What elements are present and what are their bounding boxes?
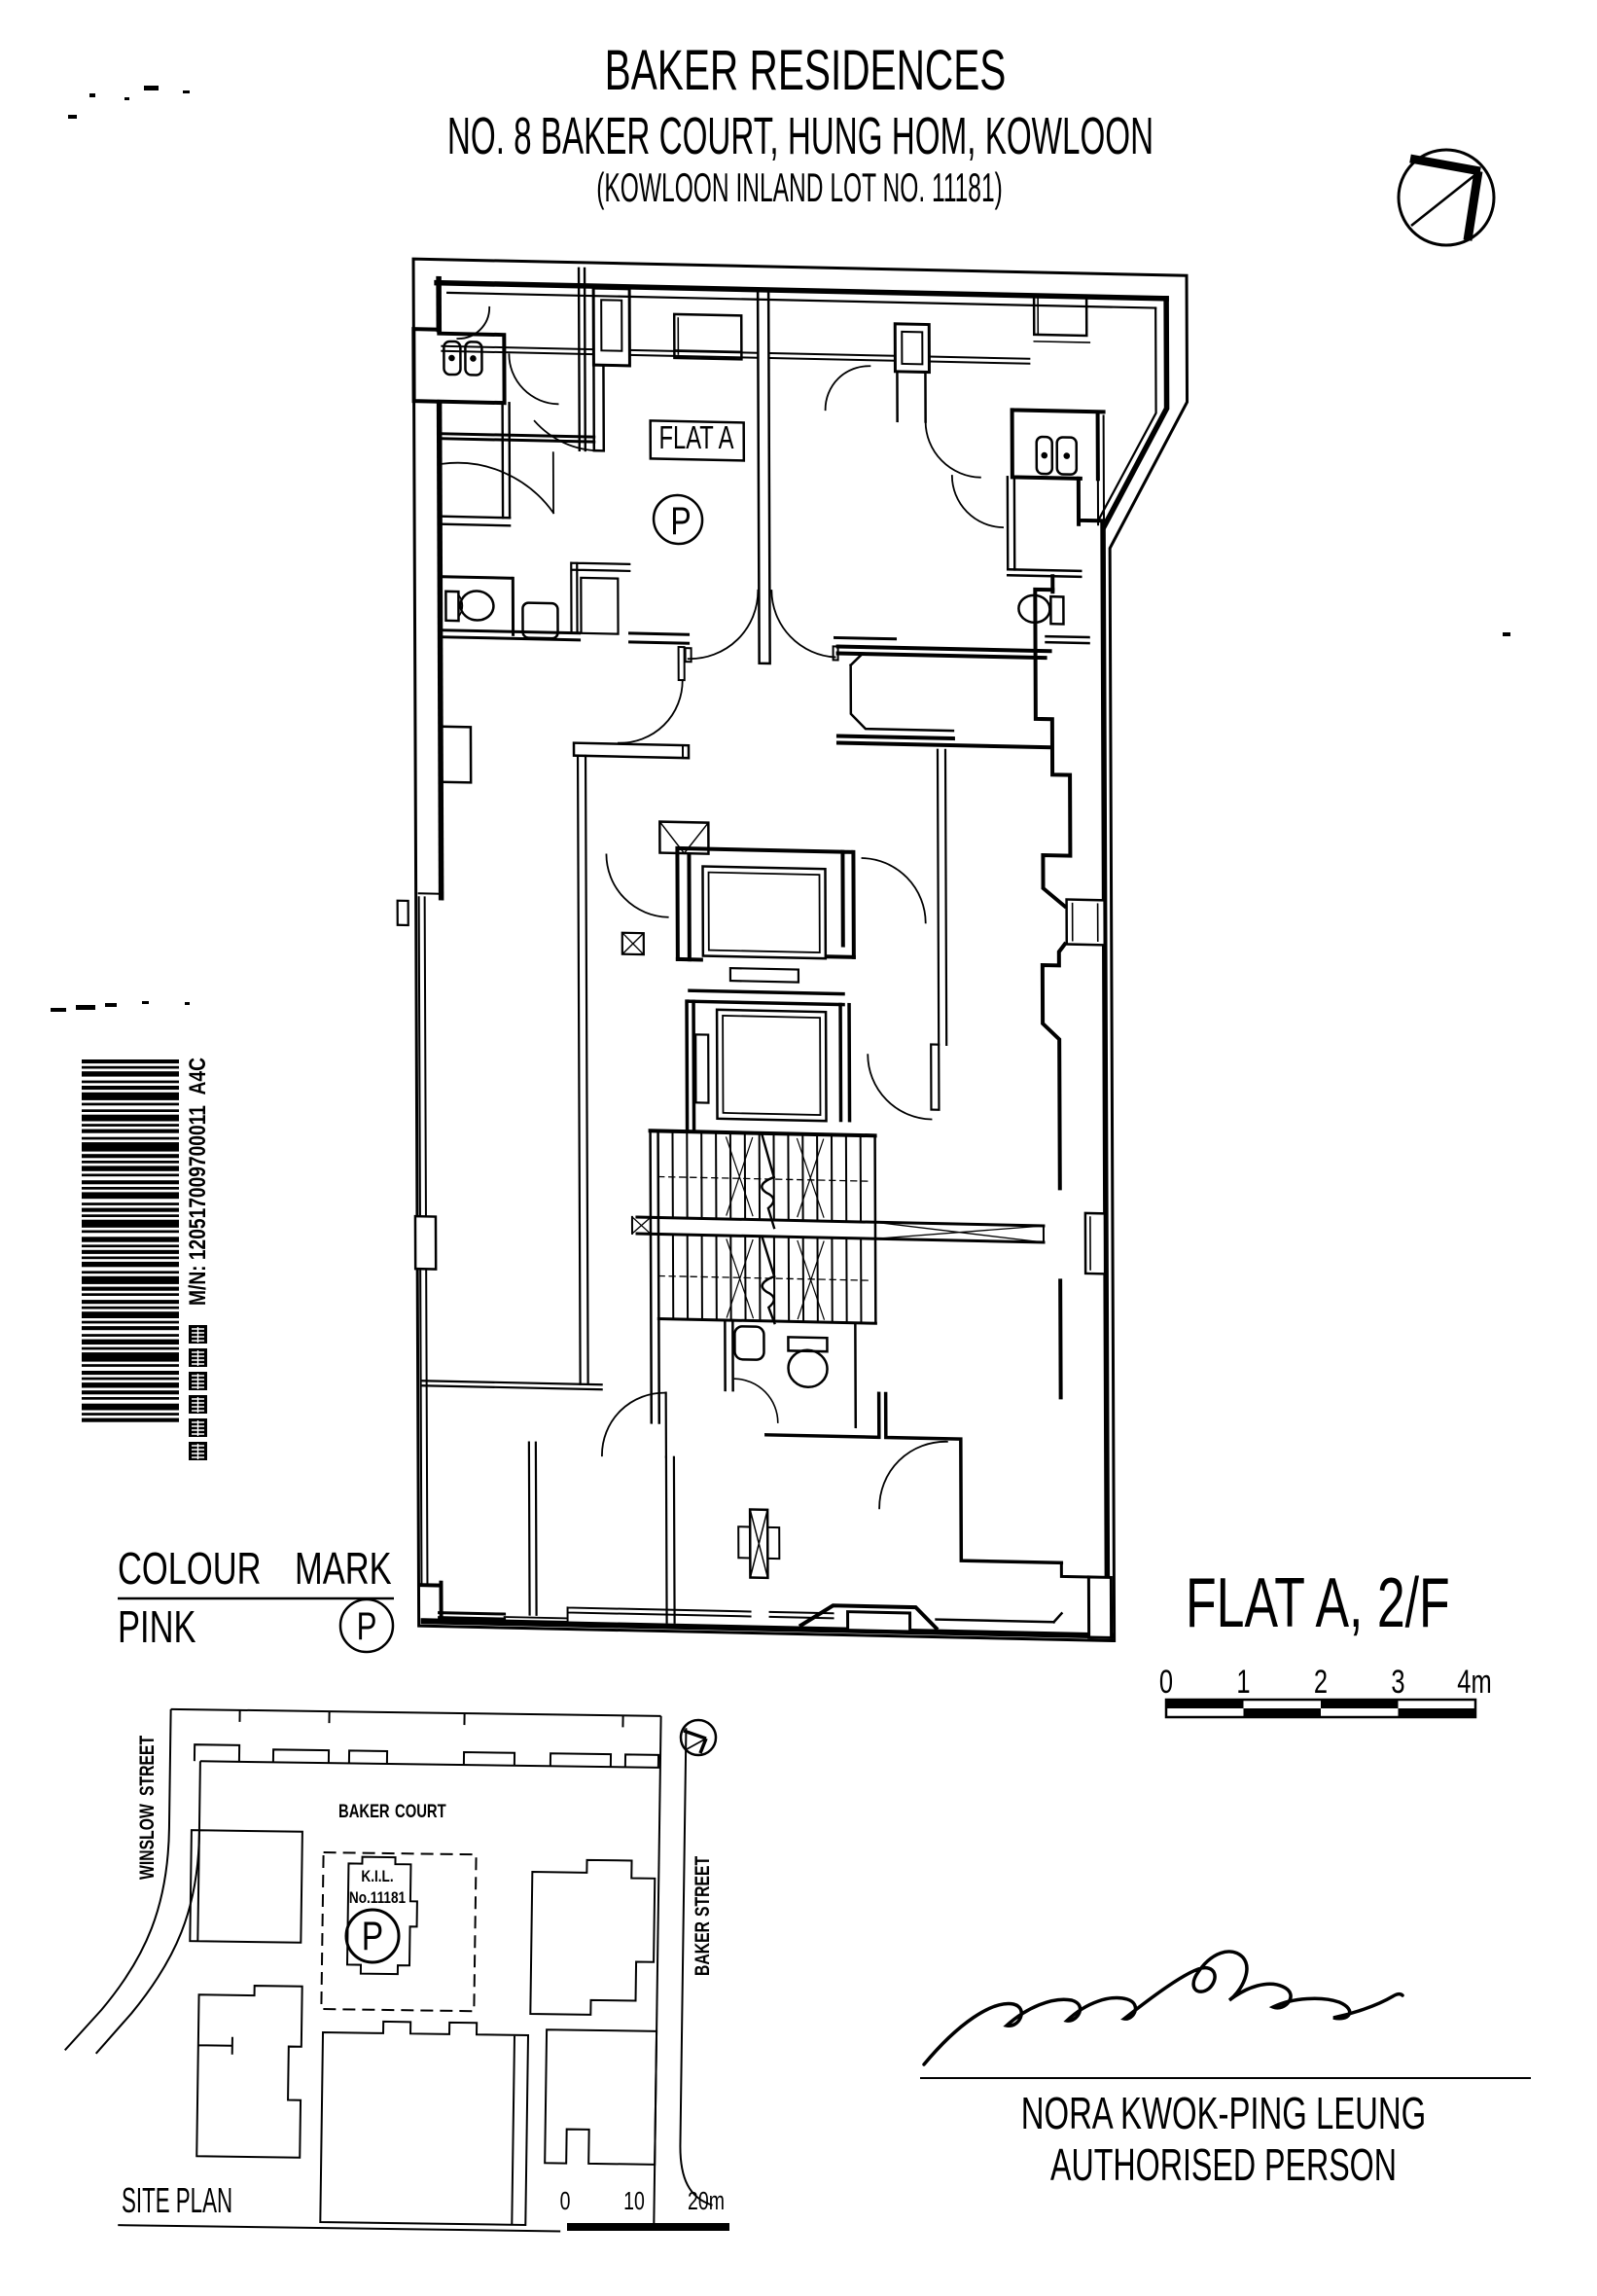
svg-text:0: 0 [1159,1665,1173,1701]
svg-text:4m: 4m [1457,1665,1491,1701]
svg-text:3: 3 [1391,1665,1404,1701]
svg-text:NORA KWOK-PING LEUNG: NORA KWOK-PING LEUNG [1021,2090,1426,2139]
svg-text:COLOUR: COLOUR [118,1543,262,1594]
svg-text:20m: 20m [688,2186,725,2214]
svg-text:P: P [670,499,691,543]
svg-text:2: 2 [1314,1665,1328,1701]
svg-text:BAKER: BAKER [338,1801,390,1821]
svg-text:FLAT A: FLAT A [658,420,734,456]
svg-text:1: 1 [1236,1665,1250,1701]
svg-text:K.I.L.: K.I.L. [361,1868,393,1886]
svg-text:0: 0 [560,2186,571,2214]
svg-text:STREET: STREET [135,1735,159,1796]
svg-text:SITE PLAN: SITE PLAN [122,2182,232,2221]
svg-text:M/N: 120517009700011 A4C: M/N: 120517009700011 A4C [184,1058,211,1306]
svg-text:BAKER RESIDENCES: BAKER RESIDENCES [605,39,1007,102]
svg-text:No.11181: No.11181 [349,1889,407,1908]
svg-text:AUTHORISED PERSON: AUTHORISED PERSON [1050,2140,1397,2190]
svg-text:COURT: COURT [395,1801,446,1821]
svg-text:MARK: MARK [295,1543,392,1594]
svg-text:NO. 8 BAKER COURT, HUNG HOM, K: NO. 8 BAKER COURT, HUNG HOM, KOWLOON [447,107,1153,165]
svg-text:WINSLOW: WINSLOW [135,1804,159,1880]
svg-text:FLAT A, 2/F: FLAT A, 2/F [1186,1564,1450,1642]
svg-text:10: 10 [623,2186,645,2214]
svg-text:PINK: PINK [118,1601,195,1652]
svg-text:STREET: STREET [691,1855,714,1917]
svg-text:P: P [357,1604,377,1648]
svg-text:P: P [362,1915,383,1959]
svg-text:BAKER: BAKER [691,1921,714,1976]
svg-text:(KOWLOON INLAND LOT NO. 11181): (KOWLOON INLAND LOT NO. 11181) [596,165,1003,210]
